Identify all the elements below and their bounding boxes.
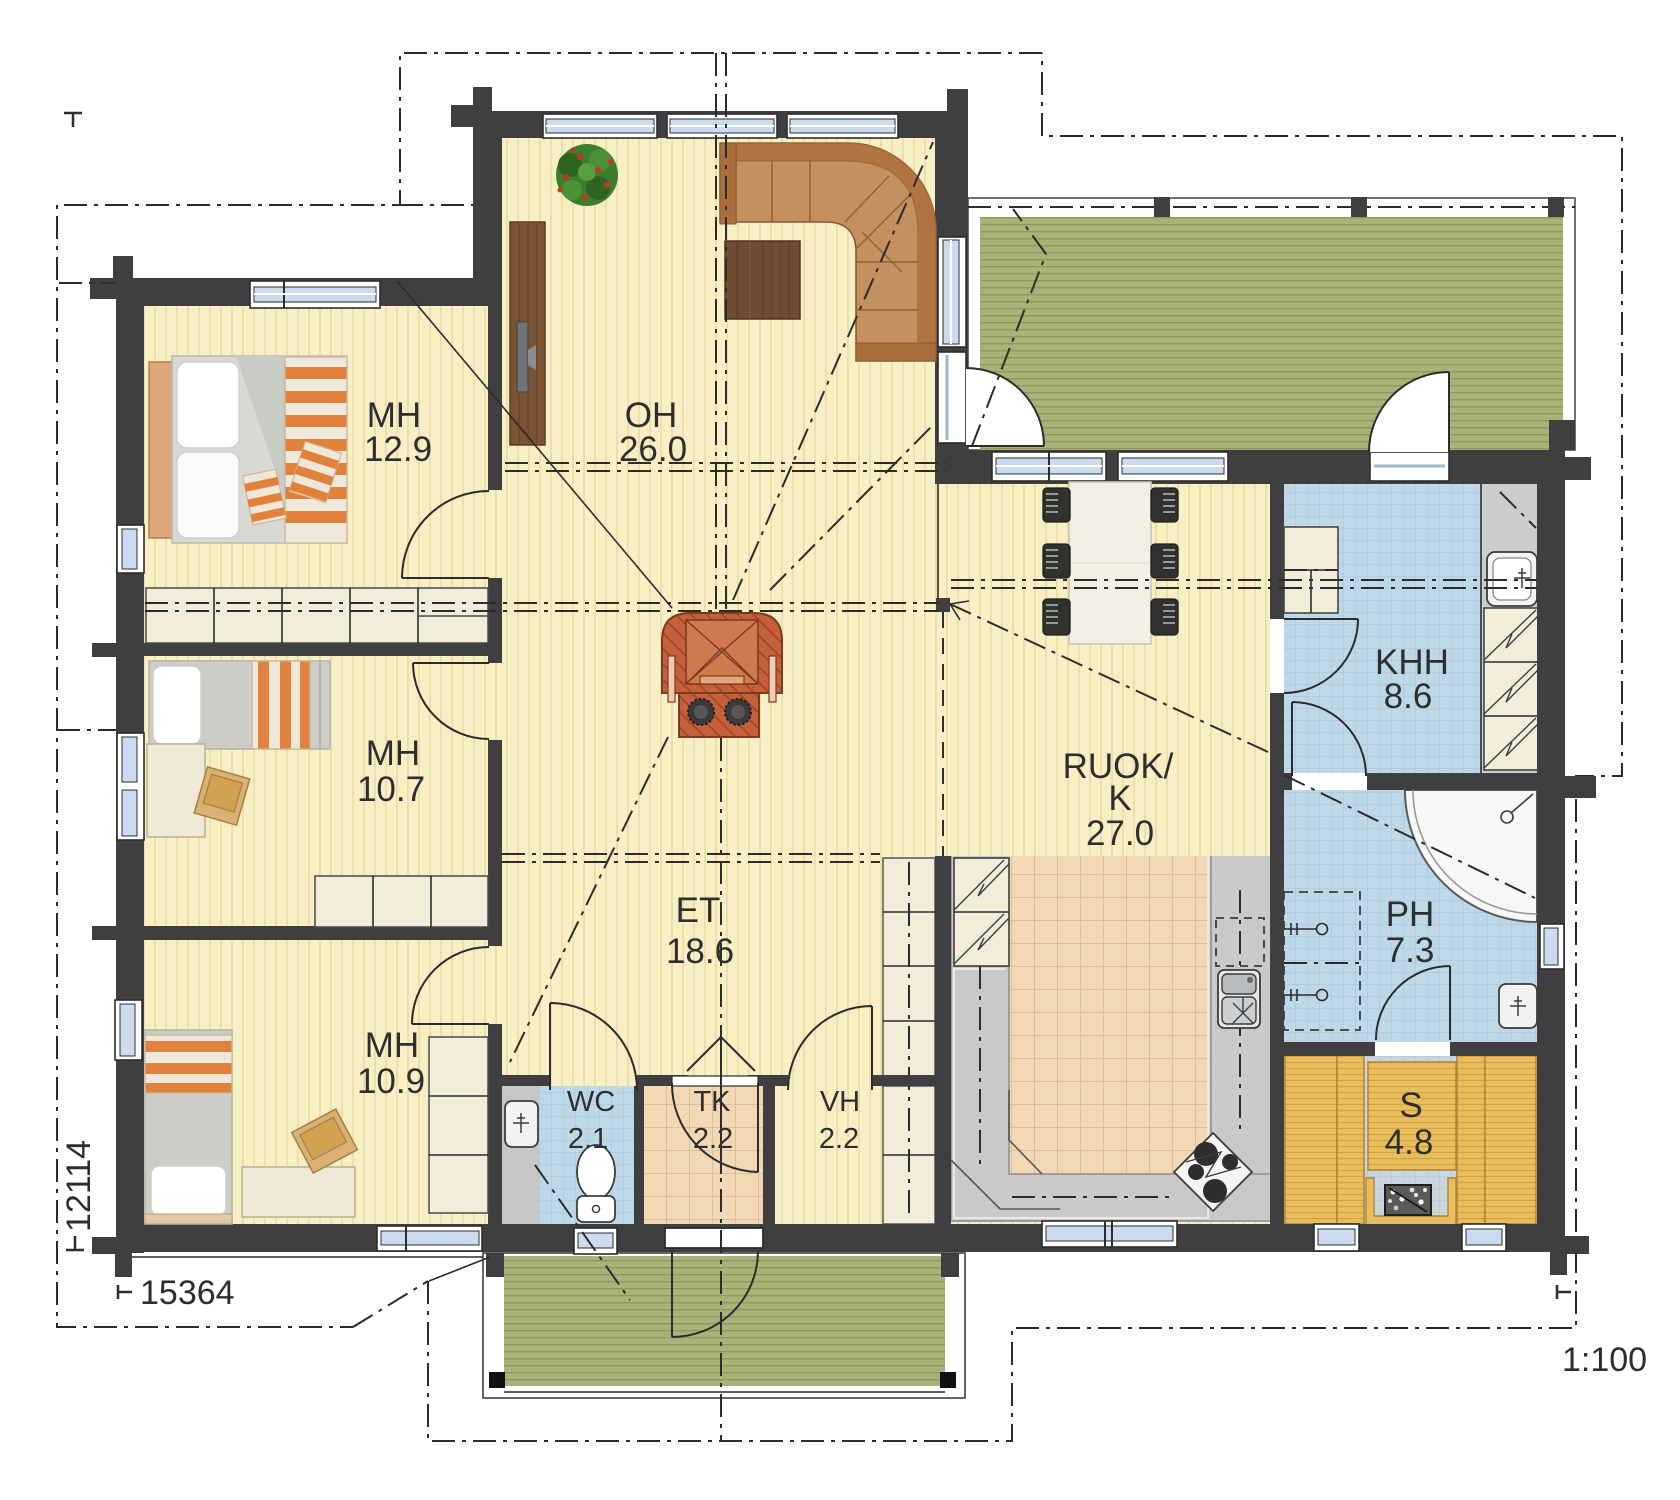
svg-text:2.2: 2.2 — [819, 1123, 859, 1155]
svg-text:26.0: 26.0 — [619, 430, 687, 469]
svg-text:10.9: 10.9 — [357, 1062, 425, 1101]
svg-text:27.0: 27.0 — [1086, 814, 1154, 853]
svg-text:ET: ET — [676, 891, 721, 930]
svg-text:S: S — [1399, 1086, 1422, 1125]
svg-text:7.3: 7.3 — [1386, 931, 1435, 970]
svg-text:K: K — [1108, 779, 1131, 818]
svg-text:2.1: 2.1 — [568, 1123, 608, 1155]
svg-text:15364: 15364 — [140, 1274, 235, 1312]
svg-text:TK: TK — [693, 1086, 731, 1118]
svg-text:VH: VH — [820, 1086, 860, 1118]
svg-text:4.8: 4.8 — [1385, 1123, 1434, 1162]
svg-text:18.6: 18.6 — [666, 932, 734, 971]
svg-text:12.9: 12.9 — [364, 430, 432, 469]
svg-text:12114: 12114 — [60, 1140, 98, 1232]
svg-text:PH: PH — [1386, 895, 1435, 934]
svg-text:WC: WC — [567, 1086, 615, 1118]
svg-text:1:100: 1:100 — [1562, 1341, 1647, 1379]
svg-text:MH: MH — [365, 1026, 419, 1065]
svg-text:10.7: 10.7 — [357, 770, 425, 809]
svg-text:2.2: 2.2 — [693, 1123, 733, 1155]
svg-text:MH: MH — [366, 734, 420, 773]
svg-text:8.6: 8.6 — [1384, 677, 1433, 716]
